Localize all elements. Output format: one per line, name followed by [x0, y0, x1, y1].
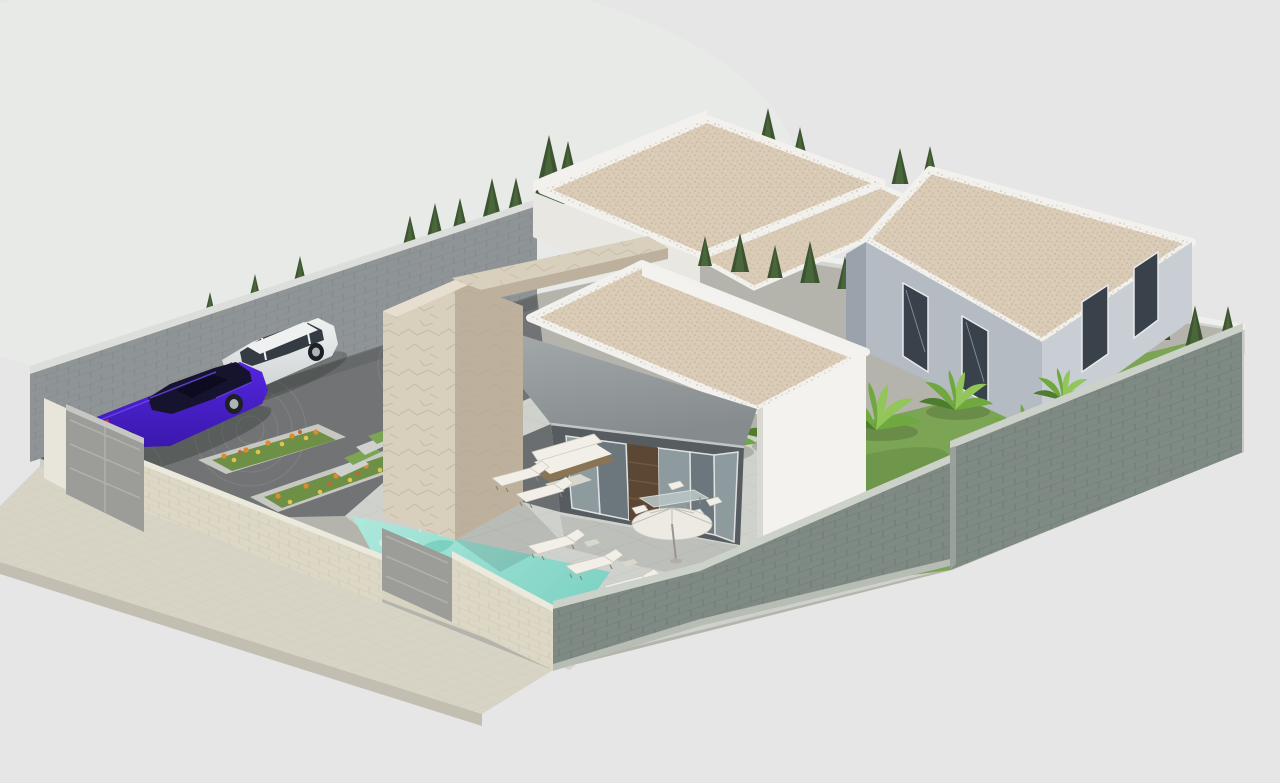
stone-texture — [383, 280, 455, 540]
stone-texture — [455, 280, 523, 540]
wall-step — [950, 446, 956, 570]
gate-pillar — [44, 398, 66, 490]
architectural-render — [0, 0, 1280, 783]
wall-corner-shade — [757, 407, 763, 548]
